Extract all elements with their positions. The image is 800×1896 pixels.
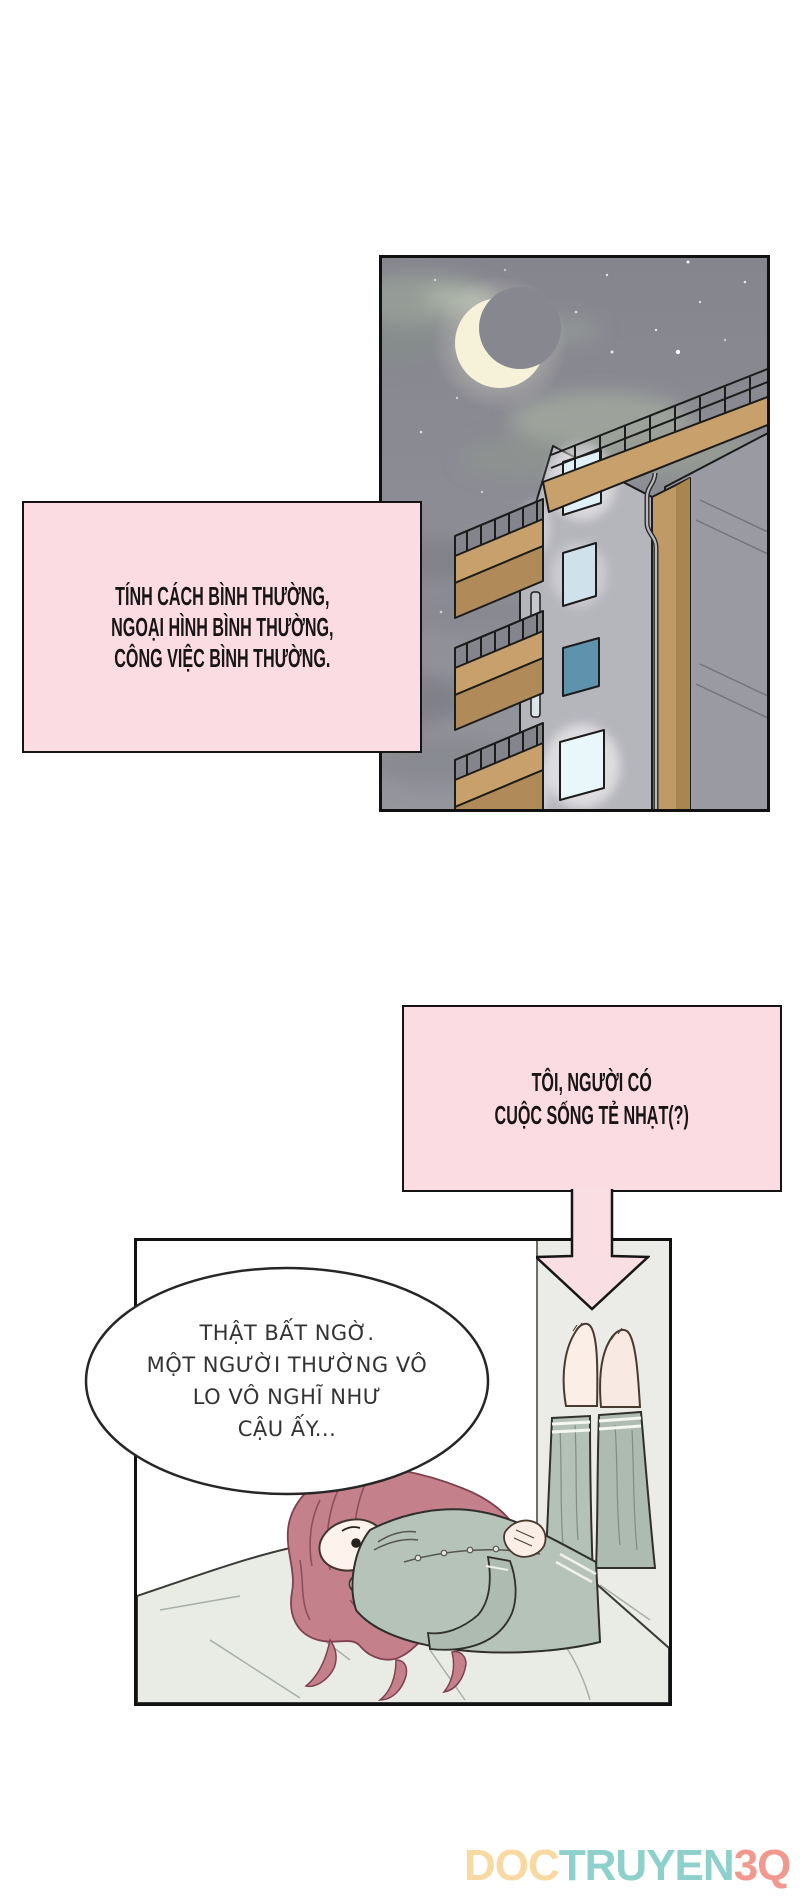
night-scene — [382, 258, 767, 809]
caption-text: TÍNH CÁCH BÌNH THƯỜNG, NGOẠI HÌNH BÌNH T… — [111, 581, 333, 674]
caption-line: CÔNG VIỆC BÌNH THƯỜNG. — [114, 643, 330, 674]
bubble-line: CẬU ẤY... — [238, 1413, 337, 1445]
watermark-segment: 3Q — [734, 1841, 791, 1890]
watermark-logo: DOCTRUYEN3Q — [464, 1841, 790, 1891]
caption-line: NGOẠI HÌNH BÌNH THƯỜNG, — [111, 612, 333, 643]
comic-page: TÍNH CÁCH BÌNH THƯỜNG, NGOẠI HÌNH BÌNH T… — [0, 0, 800, 1896]
teal-window — [563, 638, 599, 696]
watermark-segment: DOC — [464, 1841, 559, 1890]
bubble-line: MỘT NGƯỜI THƯỜNG VÔ — [147, 1349, 428, 1381]
thought-line: TÔI, NGƯỜI CÓ — [532, 1066, 652, 1099]
down-arrow-icon — [536, 1189, 648, 1309]
caption-line: TÍNH CÁCH BÌNH THƯỜNG, — [115, 581, 329, 612]
thought-line: CUỘC SỐNG TẺ NHẠT(?) — [495, 1099, 689, 1132]
crescent-moon — [432, 275, 568, 411]
speech-bubble: THẬT BẤT NGỜ. MỘT NGƯỜI THƯỜNG VÔ LO VÔ … — [80, 1260, 494, 1502]
caption-box: TÍNH CÁCH BÌNH THƯỜNG, NGOẠI HÌNH BÌNH T… — [22, 501, 422, 753]
bubble-line: THẬT BẤT NGỜ. — [199, 1317, 374, 1349]
speech-bubble-text: THẬT BẤT NGỜ. MỘT NGƯỜI THƯỜNG VÔ LO VÔ … — [80, 1260, 494, 1502]
thought-text: TÔI, NGƯỜI CÓ CUỘC SỐNG TẺ NHẠT(?) — [495, 1066, 689, 1132]
down-arrow-pointer — [536, 1189, 650, 1312]
thought-box: TÔI, NGƯỜI CÓ CUỘC SỐNG TẺ NHẠT(?) — [402, 1005, 782, 1192]
night-sky-panel — [379, 255, 770, 812]
watermark-segment: TRUYEN — [559, 1841, 734, 1890]
hand — [504, 1520, 546, 1556]
bubble-line: LO VÔ NGHĨ NHƯ — [193, 1381, 382, 1413]
lit-window — [563, 543, 596, 606]
lit-window — [560, 730, 604, 800]
